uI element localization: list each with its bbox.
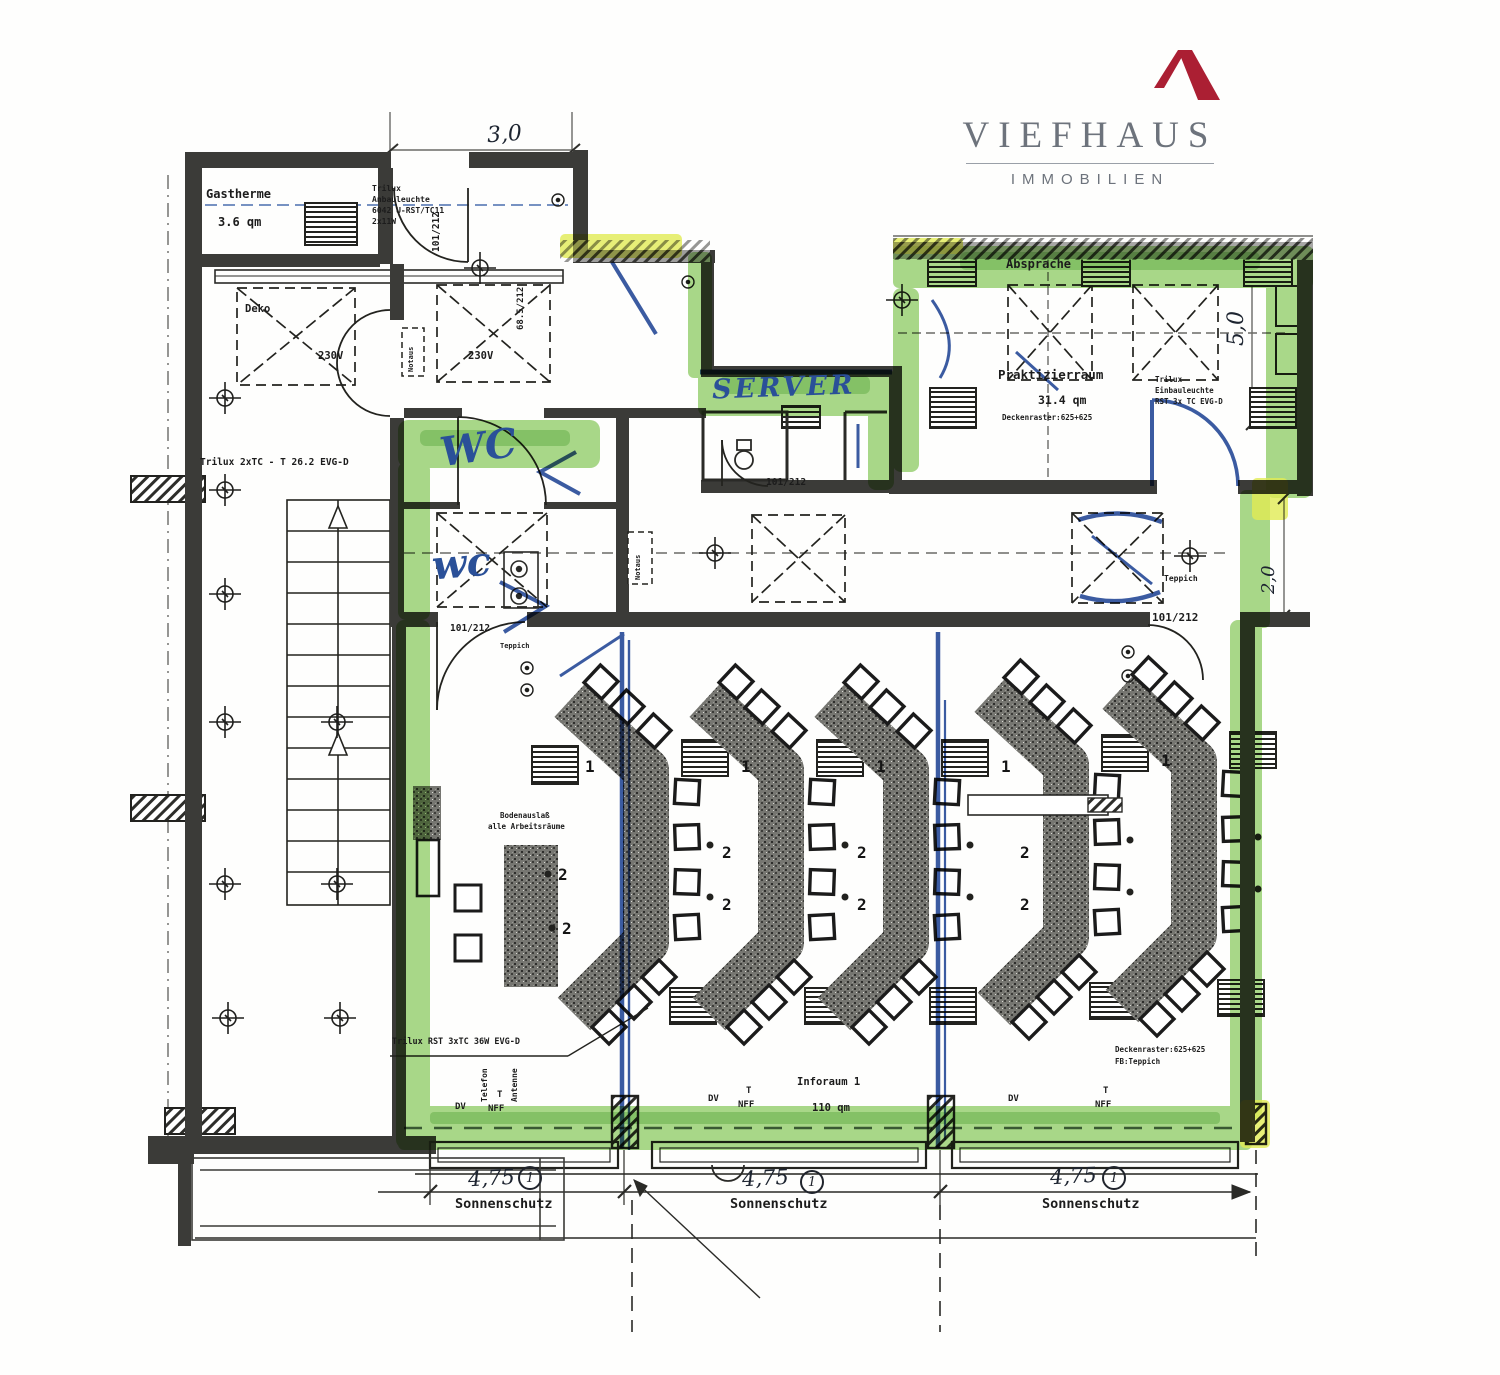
label-fb-teppich: FB:Teppich (1115, 1058, 1160, 1067)
handwritten-dim-right2: 2,0 (1258, 565, 1279, 594)
svg-text:2: 2 (722, 895, 732, 914)
label-230v-2: 230V (468, 350, 493, 362)
trilux-anbau-line4: 2x11W (372, 217, 396, 226)
label-nff-2: NFF (738, 1100, 754, 1110)
logo-subtitle: IMMOBILIEN (960, 171, 1220, 188)
door-code-right: 101/212 (1152, 612, 1198, 625)
label-trilux-left: Trilux 2xTC - T 26.2 EVG-D (200, 458, 349, 469)
logo-roof-icon (1150, 48, 1220, 100)
label-t-3: T (1103, 1086, 1108, 1096)
label-antenne: Antenne (510, 1068, 519, 1102)
circled-number-3: 1 (1102, 1166, 1126, 1190)
svg-text:1: 1 (741, 757, 751, 776)
svg-text:2: 2 (1020, 895, 1030, 914)
room-label-gastherme: Gastherme (206, 188, 271, 202)
label-teppich-right: Teppich (1164, 574, 1198, 583)
room-area-inforaum: 110 qm (812, 1102, 850, 1114)
label-bodenauslass-2: alle Arbeitsräume (488, 823, 565, 832)
label-sonnenschutz-2: Sonnenschutz (730, 1197, 828, 1213)
circled-number-1: 1 (518, 1166, 542, 1190)
svg-text:2: 2 (1020, 843, 1030, 862)
label-sonnenschutz-1: Sonnenschutz (455, 1197, 553, 1213)
room-area-praktizierraum: 31.4 qm (1038, 394, 1086, 407)
label-notaus-1: Notaus (407, 347, 415, 372)
svg-text:1: 1 (1001, 757, 1011, 776)
handwritten-dim-top: 3,0 (486, 121, 523, 148)
trilux-symbol-block (305, 203, 357, 245)
door-code-685: 68.5/212 (516, 287, 526, 330)
label-trilux-bottom: Trilux RST 3xTC 36W EVG-D (392, 1038, 520, 1048)
label-nff-1: NFF (488, 1104, 504, 1114)
handwritten-dim-win-1: 4,75 (467, 1165, 515, 1191)
floorplan-page: 1 1 1 1 1 2 2 2 2 2 2 2 2 (0, 0, 1500, 1375)
door-code-entry: 101/212 (432, 212, 443, 252)
logo-divider (966, 163, 1214, 164)
label-deko: Deko (245, 303, 270, 315)
svg-text:1: 1 (876, 757, 886, 776)
label-t-1: T (497, 1090, 502, 1100)
room-note-praktizierraum: Deckenraster:625+625 (1002, 414, 1092, 423)
label-telefon: Telefon (480, 1068, 489, 1102)
svg-text:1: 1 (1161, 751, 1171, 770)
svg-text:1: 1 (585, 757, 595, 776)
staircase (287, 500, 390, 905)
logo: VIEFHAUS IMMOBILIEN (960, 48, 1220, 188)
svg-text:2: 2 (558, 865, 568, 884)
label-230v-1: 230V (318, 350, 343, 362)
door-code-wc: 101/212 (450, 624, 490, 635)
label-notaus-2: Notaus (634, 555, 642, 580)
circled-number-2: 1 (800, 1170, 824, 1194)
svg-text:2: 2 (857, 895, 867, 914)
label-sonnenschutz-3: Sonnenschutz (1042, 1197, 1140, 1213)
handwritten-dim-win-2: 4,75 (741, 1165, 789, 1191)
room-label-praktizierraum: Praktizierraum (998, 368, 1103, 382)
label-nff-3: NFF (1095, 1100, 1111, 1110)
room-area-gastherme: 3.6 qm (218, 216, 261, 230)
room-label-absprache: Absprache (1006, 258, 1071, 272)
trilux-anbau-line1: Trilux (372, 184, 401, 193)
trilux-einbau-line3: RST 3x TC EVG-D (1155, 398, 1223, 407)
handwritten-wc-2: wc (430, 538, 493, 590)
handwritten-dim-right: 5,0 (1224, 311, 1249, 346)
label-teppich-small: Teppich (500, 642, 530, 650)
logo-name: VIEFHAUS (960, 114, 1220, 157)
label-dv-1: DV (455, 1102, 466, 1112)
trilux-einbau-line1: Trilux (1155, 376, 1182, 385)
handwritten-dim-win-3: 4,75 (1049, 1163, 1097, 1189)
label-dv-2: DV (708, 1094, 719, 1104)
label-dv-3: DV (1008, 1094, 1019, 1104)
toilet-symbol (735, 440, 753, 469)
trilux-einbau-line2: Einbauleuchte (1155, 387, 1214, 396)
svg-text:2: 2 (562, 919, 572, 938)
label-bodenauslass-1: Bodenauslaß (500, 812, 550, 821)
label-deckenraster: Deckenraster:625+625 (1115, 1046, 1205, 1055)
svg-text:2: 2 (722, 843, 732, 862)
desk-groups (413, 657, 1276, 1044)
room-label-inforaum: Inforaum 1 (797, 1076, 860, 1088)
door-code-serverwc: 101/212 (766, 478, 806, 489)
handwritten-server: SERVER (712, 370, 857, 406)
svg-text:2: 2 (857, 843, 867, 862)
label-t-2: T (746, 1086, 751, 1096)
trilux-anbau-line2: Anbauleuchte (372, 195, 430, 204)
